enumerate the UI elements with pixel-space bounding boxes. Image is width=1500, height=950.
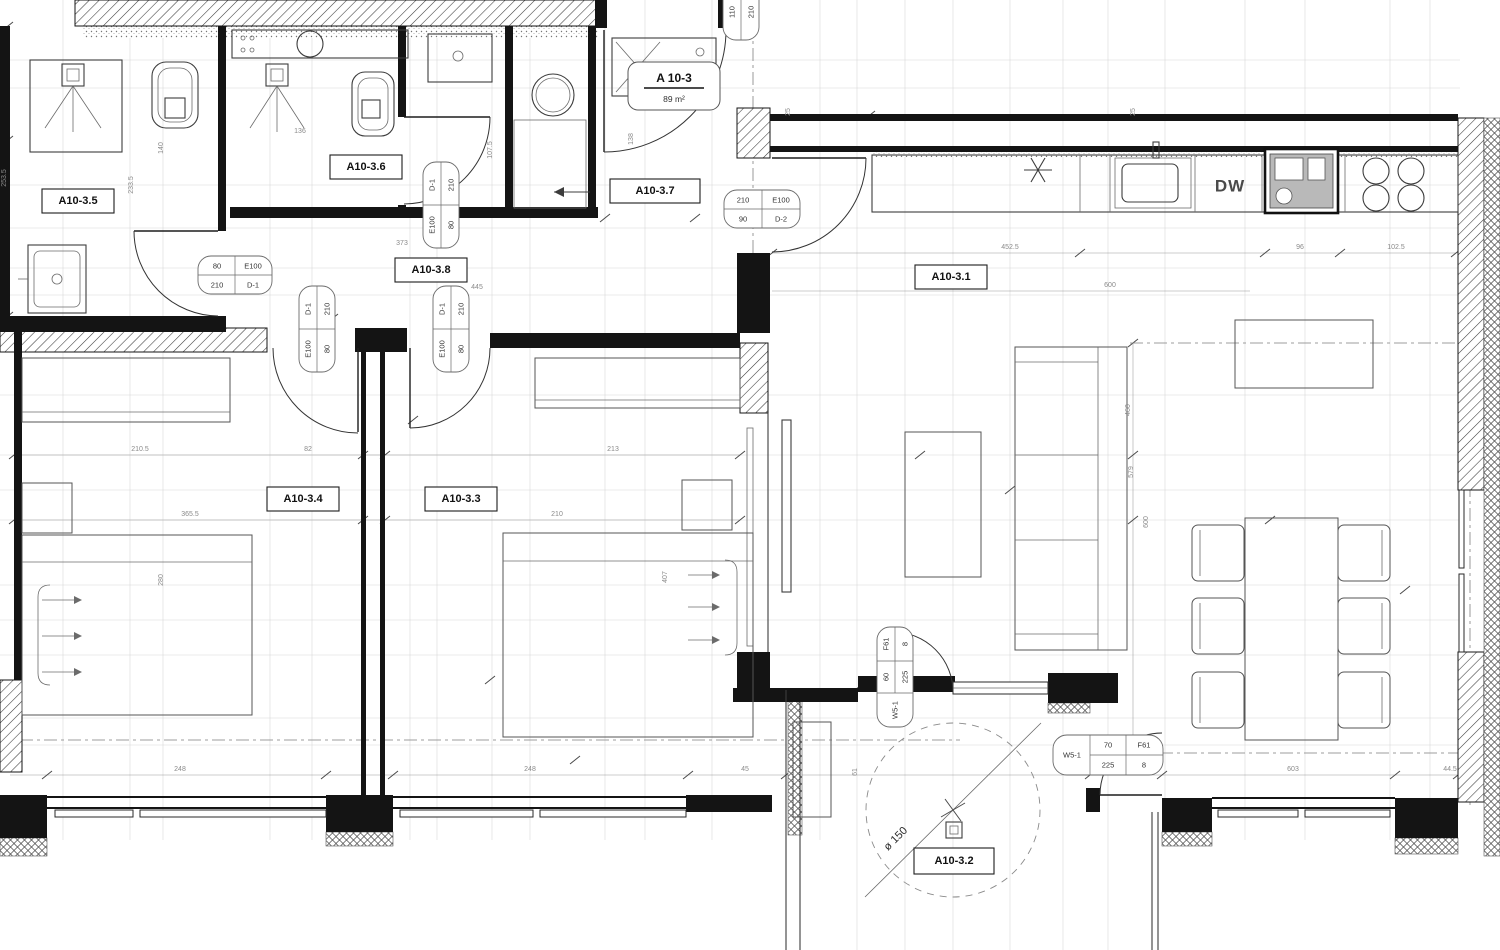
door-label-d1-c: E100D-1 80210 [299, 286, 335, 372]
door-label-d1-b: E100D-1 80210 [423, 162, 459, 248]
svg-text:110: 110 [728, 6, 737, 18]
window-living-right [1459, 490, 1464, 568]
room-label-a10-3-4: A10-3.4 [267, 487, 339, 511]
svg-text:80: 80 [447, 221, 456, 229]
dimension-text: 603 [1287, 766, 1299, 773]
svg-text:D-1: D-1 [428, 179, 437, 191]
room-label-a10-3-1: A10-3.1 [915, 265, 987, 289]
dimension-text: 253.5 [1, 169, 8, 187]
toilet-a10-3-5 [152, 62, 198, 128]
dimension-text: 25 [1130, 108, 1137, 116]
exterior-wall-top [75, 0, 605, 26]
unit-name: A 10-3 [656, 71, 692, 85]
svg-text:80: 80 [213, 262, 221, 271]
svg-text:A10-3.3: A10-3.3 [441, 493, 480, 505]
svg-text:A10-3.2: A10-3.2 [934, 855, 973, 867]
dimension-text: 210.5 [131, 446, 149, 453]
svg-text:A10-3.5: A10-3.5 [58, 195, 97, 207]
room-label-a10-3-8: A10-3.8 [395, 258, 467, 282]
svg-text:A10-3.7: A10-3.7 [635, 185, 674, 197]
dimension-text: 460 [1125, 404, 1132, 416]
exterior-wall-right [1458, 118, 1484, 490]
tv [782, 420, 791, 592]
svg-text:D-2: D-2 [775, 215, 787, 224]
svg-text:8: 8 [1142, 761, 1146, 770]
dimension-text: 107.5 [487, 141, 494, 159]
svg-text:A10-3.6: A10-3.6 [346, 161, 385, 173]
nightstand-a10-3-4 [22, 483, 72, 533]
window-label-w5-1-a: W5-1 60225 F618 [877, 627, 913, 727]
dimension-text: 445 [471, 284, 483, 291]
door-label-d1-a: 80E100 210D-1 [198, 256, 272, 294]
floor-plan-drawing: DW [0, 0, 1500, 950]
dimension-text: 82 [304, 446, 312, 453]
svg-text:E100: E100 [244, 262, 262, 271]
sideboard [1235, 320, 1373, 388]
insulation-right [1484, 118, 1500, 856]
dimension-text: 140 [158, 142, 165, 154]
dimension-text: 96 [1296, 244, 1304, 251]
dining-chairs [1192, 525, 1390, 728]
dimension-text: 25 [785, 108, 792, 116]
oven [1265, 149, 1338, 213]
dimension-text: 213 [607, 446, 619, 453]
dining-table [1245, 518, 1338, 740]
window-bedroom1 [55, 810, 133, 817]
toilet-a10-3-6 [352, 72, 394, 136]
svg-text:W5-1: W5-1 [1063, 751, 1081, 760]
coffee-table [905, 432, 981, 577]
door-label-entrance: 110 210 [723, 0, 759, 40]
dimension-text: 579 [1128, 466, 1135, 478]
nightstand-a10-3-3 [682, 480, 732, 530]
doors [134, 30, 1162, 795]
svg-text:210: 210 [457, 303, 466, 316]
svg-text:80: 80 [457, 345, 466, 353]
drain-icon [946, 822, 962, 838]
svg-text:225: 225 [1102, 761, 1115, 770]
room-label-a10-3-5: A10-3.5 [42, 189, 114, 213]
door-label-d1-d: E100D-1 80210 [433, 286, 469, 372]
svg-text:225: 225 [901, 671, 910, 684]
dimension-text: 210 [551, 511, 563, 518]
light-symbol-icon [1024, 158, 1052, 182]
dimension-text: 102.5 [1387, 244, 1405, 251]
dimension-text: 248 [174, 766, 186, 773]
svg-text:D-1: D-1 [247, 281, 259, 290]
radiator-a10-3-3 [688, 560, 737, 655]
svg-text:210: 210 [447, 179, 456, 192]
dimension-text: 452.5 [1001, 244, 1019, 251]
washbasin-a10-3-5 [18, 245, 86, 313]
shower-a10-3-6 [250, 64, 304, 132]
svg-text:E100: E100 [772, 196, 790, 205]
svg-text:80: 80 [323, 345, 332, 353]
room-label-a10-3-2: A10-3.2 [914, 848, 994, 874]
wardrobe-a10-3-3 [535, 358, 740, 408]
dimension-text: 44.5 [1443, 766, 1457, 773]
svg-text:90: 90 [739, 215, 747, 224]
wardrobe-a10-3-4 [22, 358, 230, 422]
room-label-a10-3-6: A10-3.6 [330, 155, 402, 179]
svg-text:E100: E100 [428, 216, 437, 234]
door-label-d2: 210E100 90D-2 [724, 190, 800, 228]
room-labels: A10-3.5 A10-3.6 A10-3.7 A10-3.8 A10-3.4 … [42, 62, 994, 874]
dimension-text: 600 [1104, 282, 1116, 289]
svg-text:D-1: D-1 [438, 303, 447, 315]
svg-text:70: 70 [1104, 741, 1112, 750]
svg-text:210: 210 [211, 281, 224, 290]
room-label-a10-3-7: A10-3.7 [610, 179, 700, 203]
svg-text:E100: E100 [304, 340, 313, 358]
cooktop [1363, 158, 1424, 211]
unit-area: 89 m² [663, 94, 685, 104]
svg-text:F61: F61 [882, 638, 891, 651]
svg-text:F61: F61 [1138, 741, 1151, 750]
radiator-a10-3-4 [38, 585, 82, 685]
bed-a10-3-4 [22, 535, 252, 715]
svg-text:210: 210 [737, 196, 750, 205]
svg-text:A10-3.4: A10-3.4 [283, 493, 323, 505]
unit-title: A 10-3 89 m² [628, 62, 720, 110]
bed-a10-3-3 [503, 533, 753, 737]
shower-a10-3-5 [30, 60, 122, 152]
dimension-text: 373 [396, 240, 408, 247]
svg-text:210: 210 [323, 303, 332, 316]
dimension-text: 407 [662, 571, 669, 583]
dimension-text: 248 [524, 766, 536, 773]
svg-text:W5-1: W5-1 [891, 701, 900, 719]
dimension-text: 61 [852, 768, 859, 776]
dimension-text: 45 [741, 766, 749, 773]
bedroom-furniture [22, 358, 753, 737]
walls [0, 0, 1500, 950]
dimension-text: 138 [628, 133, 635, 145]
sofa [1015, 347, 1127, 650]
dimension-text: 136 [294, 128, 306, 135]
washbasin-utility [428, 34, 492, 82]
svg-text:A10-3.8: A10-3.8 [411, 264, 450, 276]
slide-arrow [554, 187, 564, 197]
svg-text:210: 210 [747, 6, 756, 19]
svg-text:D-1: D-1 [304, 303, 313, 315]
dimension-text: 600 [1143, 516, 1150, 528]
dishwasher-label: DW [1215, 177, 1245, 196]
exterior-wall-living-top [770, 114, 1458, 121]
svg-text:60: 60 [882, 673, 891, 681]
dimension-text: 233.5 [128, 176, 135, 194]
window-label-w5-1-b: W5-1 70225 F618 [1053, 735, 1163, 775]
room-label-a10-3-3: A10-3.3 [425, 487, 497, 511]
window-bedroom2 [400, 810, 533, 817]
floor-plan-page: DW [0, 0, 1500, 950]
dimension-text: 365.5 [181, 511, 199, 518]
diameter-label: ø 150 [882, 825, 910, 853]
wall-recess [747, 428, 753, 646]
svg-text:8: 8 [901, 642, 910, 646]
washing-machine [514, 74, 590, 208]
window-living-bottom [1218, 810, 1298, 817]
svg-text:A10-3.1: A10-3.1 [931, 271, 970, 283]
dimension-text: 280 [158, 574, 165, 586]
svg-text:E100: E100 [438, 340, 447, 358]
